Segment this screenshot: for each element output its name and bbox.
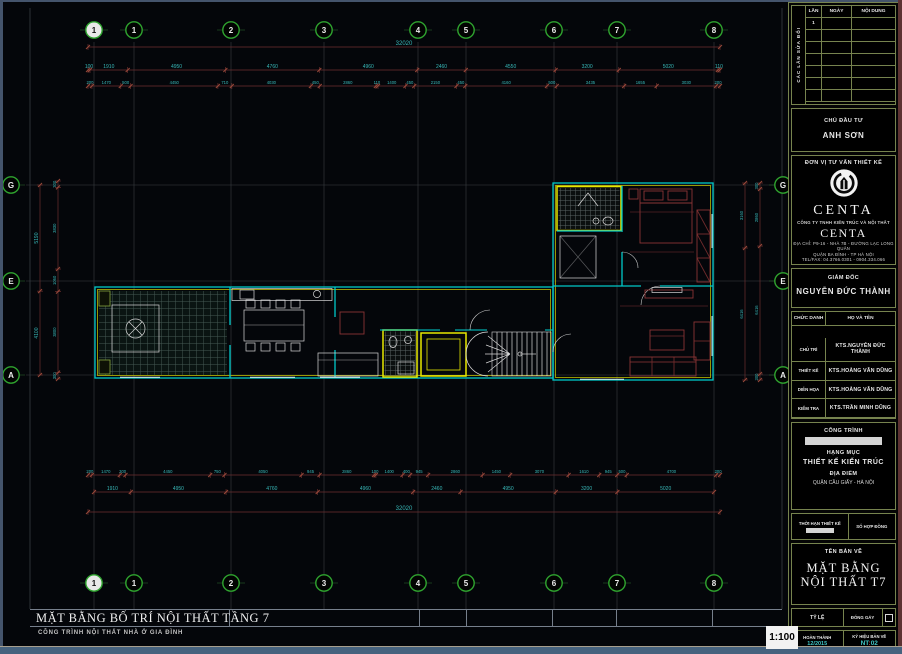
personnel-name: KTS.NGUYỄN ĐỨC THÀNH <box>826 338 895 363</box>
elevator <box>421 333 466 376</box>
svg-text:1470: 1470 <box>102 80 112 85</box>
project-item: THIẾT KẾ KIẾN TRÚC <box>792 459 895 466</box>
svg-text:4450: 4450 <box>170 80 180 85</box>
rev-cell <box>806 78 822 90</box>
rev-cell <box>852 90 895 102</box>
grid-bubble: G <box>769 177 790 193</box>
grid-bubble: 1 <box>80 22 108 38</box>
project-section: CÔNG TRÌNH HẠNG MỤC THIẾT KẾ KIẾN TRÚC Đ… <box>791 422 896 510</box>
svg-text:300: 300 <box>754 373 759 381</box>
svg-text:450: 450 <box>457 80 465 85</box>
grid-bubble: E <box>769 273 790 289</box>
svg-text:1060: 1060 <box>52 275 57 285</box>
title-block: CÁC LẦN SỬA ĐỔI LẦN NGÀY NỘI DUNG 1 <box>788 2 899 651</box>
grid-bubble: 3 <box>310 22 338 38</box>
island-table <box>340 312 364 334</box>
firm-company: CÔNG TY TNHH KIẾN TRÚC VÀ NỘI THẤT <box>792 220 895 226</box>
rev-col-header: NGÀY <box>822 6 852 18</box>
rev-cell <box>852 42 895 54</box>
svg-text:710: 710 <box>221 80 229 85</box>
grid-bubble: 8 <box>700 575 728 591</box>
firm-addr1: ĐỊA CHỈ: P9-16 - NHÀ 7B - ĐƯỜNG LẠC LONG… <box>792 241 895 252</box>
svg-text:4160: 4160 <box>501 80 511 85</box>
svg-text:4: 4 <box>416 26 421 35</box>
svg-text:2460: 2460 <box>431 486 442 492</box>
svg-text:100: 100 <box>85 64 94 70</box>
cad-viewport-window: 111122334455667788GGEEAA3202010019104950… <box>0 0 902 654</box>
svg-text:1910: 1910 <box>107 486 118 492</box>
revision-side-label: CÁC LẦN SỬA ĐỔI <box>792 6 806 104</box>
grid-bubble: 3 <box>310 575 338 591</box>
svg-text:4950: 4950 <box>503 486 514 492</box>
contract-left-bar <box>806 528 834 533</box>
personnel-name: KTS.HOÀNG VĂN DŨNG <box>826 381 895 400</box>
floor-plan-drawing: 111122334455667788GGEEAA3202010019104950… <box>0 0 790 654</box>
cabinets <box>318 353 378 376</box>
window-frame-right <box>898 0 902 654</box>
svg-text:5: 5 <box>464 579 469 588</box>
svg-text:1610: 1610 <box>579 469 589 474</box>
grid-bubble: 2 <box>217 575 245 591</box>
personnel-head-name: HỌ VÀ TÊN <box>826 312 895 326</box>
svg-text:3800: 3800 <box>52 327 57 337</box>
personnel-role: THIẾT KẾ <box>792 362 826 381</box>
drawing-title: MẶT BẰNG BỐ TRÍ NỘI THẤT TẦNG 7 <box>30 610 229 626</box>
contract-right-label: SỐ HỢP ĐỒNG <box>856 524 887 529</box>
svg-text:7: 7 <box>615 26 620 35</box>
svg-text:3070: 3070 <box>535 469 545 474</box>
svg-text:3160: 3160 <box>739 210 744 220</box>
rev-cell <box>806 54 822 66</box>
grid-bubble: 7 <box>603 22 631 38</box>
strip-cell <box>467 610 553 626</box>
svg-text:3030: 3030 <box>682 80 692 85</box>
svg-text:200: 200 <box>715 80 723 85</box>
svg-text:A: A <box>8 371 14 380</box>
svg-text:4: 4 <box>416 579 421 588</box>
svg-text:2: 2 <box>229 579 234 588</box>
svg-text:4700: 4700 <box>667 469 677 474</box>
personnel-name: KTS.HOÀNG VĂN DŨNG <box>826 362 895 381</box>
svg-text:32020: 32020 <box>396 41 413 47</box>
svg-text:3830: 3830 <box>52 223 57 233</box>
strip-cell <box>230 610 420 626</box>
firm-section: ĐƠN VỊ TƯ VẤN THIẾT KẾ CENTA CÔNG TY TNH… <box>791 155 896 265</box>
grid-bubble: 8 <box>700 22 728 38</box>
personnel-role: KIỂM TRA <box>792 399 826 418</box>
svg-text:5190: 5190 <box>34 232 40 243</box>
svg-text:5: 5 <box>464 26 469 35</box>
svg-text:300: 300 <box>52 180 57 188</box>
grid-bubble: 7 <box>603 575 631 591</box>
rev-cell <box>822 54 852 66</box>
grid-bubble: 5 <box>452 22 480 38</box>
rev-cell <box>822 18 852 30</box>
svg-text:4950: 4950 <box>173 486 184 492</box>
owner-section: CHỦ ĐẦU TƯ ANH SƠN <box>791 108 896 152</box>
drawing-subtitle: CÔNG TRÌNH NỘI THẤT NHÀ Ở GIA ĐÌNH <box>30 627 183 636</box>
centa-logo-icon <box>792 168 895 203</box>
contract-row: THỜI HẠN THIẾT KẾ SỐ HỢP ĐỒNG <box>791 513 896 540</box>
svg-text:E: E <box>780 277 786 286</box>
grid-bubble: A <box>0 367 25 383</box>
firm-label: ĐƠN VỊ TƯ VẤN THIẾT KẾ <box>792 160 895 166</box>
project-loc: QUẬN CẦU GIẤY - HÀ NỘI <box>792 480 895 486</box>
personnel-role: DIỄN HỌA <box>792 381 826 400</box>
personnel-table: CHỨC DANH HỌ VÀ TÊN CHỦ TRÌ KTS.NGUYỄN Đ… <box>791 311 896 419</box>
director-name: NGUYỄN ĐỨC THÀNH <box>792 287 895 296</box>
svg-text:4760: 4760 <box>267 64 278 70</box>
svg-text:3: 3 <box>322 579 327 588</box>
svg-text:300: 300 <box>52 372 57 380</box>
door-arc <box>622 252 638 268</box>
sheet-name-2: NỘI THẤT T7 <box>792 575 895 589</box>
rev-cell <box>806 42 822 54</box>
strip-cell <box>713 610 782 626</box>
svg-text:1: 1 <box>92 579 97 588</box>
svg-text:2860: 2860 <box>343 80 353 85</box>
svg-text:945: 945 <box>416 469 424 474</box>
grid-bubble: 2 <box>217 22 245 38</box>
svg-text:3: 3 <box>322 26 327 35</box>
rev-cell <box>806 30 822 42</box>
svg-text:2: 2 <box>229 26 234 35</box>
grid-bubble: 6 <box>540 22 568 38</box>
planter <box>99 291 110 306</box>
svg-text:2860: 2860 <box>754 212 759 222</box>
door-arc <box>641 286 660 305</box>
svg-text:6416: 6416 <box>754 305 759 315</box>
svg-text:4950: 4950 <box>171 64 182 70</box>
director-label: GIÁM ĐỐC <box>792 275 895 281</box>
svg-text:4050: 4050 <box>258 469 268 474</box>
contract-left-label: THỜI HẠN THIẾT KẾ <box>799 521 841 526</box>
scale-label: TỶ LỆ <box>810 615 824 621</box>
svg-text:450: 450 <box>312 80 320 85</box>
grid-bubble: E <box>0 273 25 289</box>
svg-text:2150: 2150 <box>431 80 441 85</box>
finish-label: HOÀN THÀNH <box>803 635 831 640</box>
rev-col-header: LẦN <box>806 6 822 18</box>
sheet-code-label: KÝ HIỆU BẢN VẼ <box>852 634 886 639</box>
svg-text:500: 500 <box>122 80 130 85</box>
revision-table: CÁC LẦN SỬA ĐỔI LẦN NGÀY NỘI DUNG 1 <box>791 5 896 105</box>
binding-checkbox <box>885 614 893 622</box>
rev-cell <box>822 30 852 42</box>
svg-text:4960: 4960 <box>363 64 374 70</box>
kitchen-counter <box>232 289 332 301</box>
svg-text:400: 400 <box>403 469 411 474</box>
window-frame-left <box>0 0 3 654</box>
personnel-head-role: CHỨC DANH <box>792 312 826 326</box>
svg-text:8: 8 <box>712 26 717 35</box>
grid-bubble: 1 <box>120 575 148 591</box>
planter <box>99 360 110 374</box>
rev-cell <box>852 78 895 90</box>
terrace-floor <box>99 291 227 375</box>
owner-name: ANH SƠN <box>792 131 895 140</box>
staircase <box>466 332 551 376</box>
grid-bubble: 4 <box>404 575 432 591</box>
scale-row: TỶ LỆ ĐÓNG GÁY <box>791 608 896 627</box>
bathroom-top <box>557 187 621 231</box>
door-arc <box>470 310 490 330</box>
rev-cell <box>806 66 822 78</box>
rev-cell <box>852 30 895 42</box>
svg-text:945: 945 <box>307 469 315 474</box>
binding-label: ĐÓNG GÁY <box>851 615 874 620</box>
living-room <box>620 288 710 377</box>
rev-cell <box>806 90 822 102</box>
svg-text:32020: 32020 <box>396 506 413 512</box>
dining-set <box>244 300 304 351</box>
svg-text:2860: 2860 <box>342 469 352 474</box>
rev-cell <box>852 66 895 78</box>
firm-brand: CENTA <box>792 203 895 219</box>
svg-text:E: E <box>8 277 14 286</box>
svg-text:1400: 1400 <box>387 80 397 85</box>
bedroom <box>629 189 710 282</box>
rev-cell <box>822 42 852 54</box>
strip-cell <box>617 610 713 626</box>
right-wing <box>553 183 713 380</box>
svg-text:4760: 4760 <box>266 486 277 492</box>
rev-cell <box>822 66 852 78</box>
strip-cell <box>420 610 467 626</box>
svg-text:4100: 4100 <box>34 327 40 338</box>
svg-text:3200: 3200 <box>581 486 592 492</box>
rev-cell <box>822 90 852 102</box>
grid-bubble: 4 <box>404 22 432 38</box>
svg-text:3435: 3435 <box>586 80 596 85</box>
svg-text:6416: 6416 <box>739 309 744 319</box>
svg-text:300: 300 <box>754 182 759 190</box>
svg-text:500: 500 <box>618 469 626 474</box>
svg-text:1: 1 <box>132 26 137 35</box>
sheet-label: TÊN BẢN VẼ <box>792 549 895 555</box>
svg-text:2860: 2860 <box>451 469 461 474</box>
svg-text:1470: 1470 <box>101 469 111 474</box>
scale-badge: 1:100 <box>766 626 798 649</box>
svg-text:3200: 3200 <box>582 64 593 70</box>
strip-cell <box>553 610 617 626</box>
owner-label: CHỦ ĐẦU TƯ <box>792 118 895 124</box>
window-frame-top <box>0 0 902 2</box>
svg-text:4450: 4450 <box>163 469 173 474</box>
svg-text:1: 1 <box>132 579 137 588</box>
svg-text:1910: 1910 <box>103 64 114 70</box>
sheet-name-section: TÊN BẢN VẼ MẶT BẰNG NỘI THẤT T7 <box>791 543 896 605</box>
grid-bubble: 1 <box>80 575 108 591</box>
svg-text:4030: 4030 <box>267 80 277 85</box>
svg-text:G: G <box>780 181 786 190</box>
grid-bubble: A <box>769 367 790 383</box>
rev-col-header: NỘI DUNG <box>852 6 895 18</box>
svg-text:1655: 1655 <box>636 80 646 85</box>
project-name-bar <box>805 437 882 445</box>
grid-bubble: 6 <box>540 575 568 591</box>
firm-brand2: CENTA <box>792 226 895 241</box>
drawing-canvas[interactable]: 111122334455667788GGEEAA3202010019104950… <box>0 0 790 654</box>
project-loc-label: ĐỊA ĐIỂM <box>792 471 895 477</box>
svg-text:5020: 5020 <box>660 486 671 492</box>
director-section: GIÁM ĐỐC NGUYỄN ĐỨC THÀNH <box>791 268 896 308</box>
svg-text:1450: 1450 <box>492 469 502 474</box>
svg-text:8: 8 <box>712 579 717 588</box>
grid-bubble: 5 <box>452 575 480 591</box>
project-item-label: HẠNG MỤC <box>792 450 895 456</box>
svg-text:A: A <box>780 371 786 380</box>
svg-text:2460: 2460 <box>436 64 447 70</box>
svg-text:945: 945 <box>605 469 613 474</box>
rev-cell: 1 <box>806 18 822 30</box>
rev-cell <box>852 54 895 66</box>
firm-addr4: EMAIL: CENTADESIGN@GMAIL.COM <box>792 263 895 265</box>
svg-text:6: 6 <box>552 26 557 35</box>
bathroom-left <box>383 330 417 377</box>
svg-text:G: G <box>8 181 14 190</box>
closet <box>560 236 596 278</box>
svg-text:5020: 5020 <box>663 64 674 70</box>
svg-text:1400: 1400 <box>385 469 395 474</box>
svg-text:4960: 4960 <box>360 486 371 492</box>
svg-text:750: 750 <box>214 469 222 474</box>
grid-bubble: G <box>0 177 25 193</box>
svg-text:500: 500 <box>548 80 556 85</box>
svg-text:450: 450 <box>406 80 414 85</box>
title-strip: MẶT BẰNG BỐ TRÍ NỘI THẤT TẦNG 7 CÔNG TRÌ… <box>30 609 782 647</box>
sheet-name-1: MẶT BẰNG <box>792 561 895 575</box>
rev-cell <box>852 18 895 30</box>
svg-text:110: 110 <box>715 64 723 70</box>
svg-text:7: 7 <box>615 579 620 588</box>
project-label: CÔNG TRÌNH <box>792 428 895 434</box>
personnel-role: CHỦ TRÌ <box>792 338 826 363</box>
svg-text:200: 200 <box>715 469 723 474</box>
personnel-name: KTS.TRẦN MINH DŨNG <box>826 399 895 418</box>
rev-cell <box>822 78 852 90</box>
svg-text:6: 6 <box>552 579 557 588</box>
svg-text:1: 1 <box>92 26 97 35</box>
grid-bubble: 1 <box>120 22 148 38</box>
svg-text:4550: 4550 <box>505 64 516 70</box>
